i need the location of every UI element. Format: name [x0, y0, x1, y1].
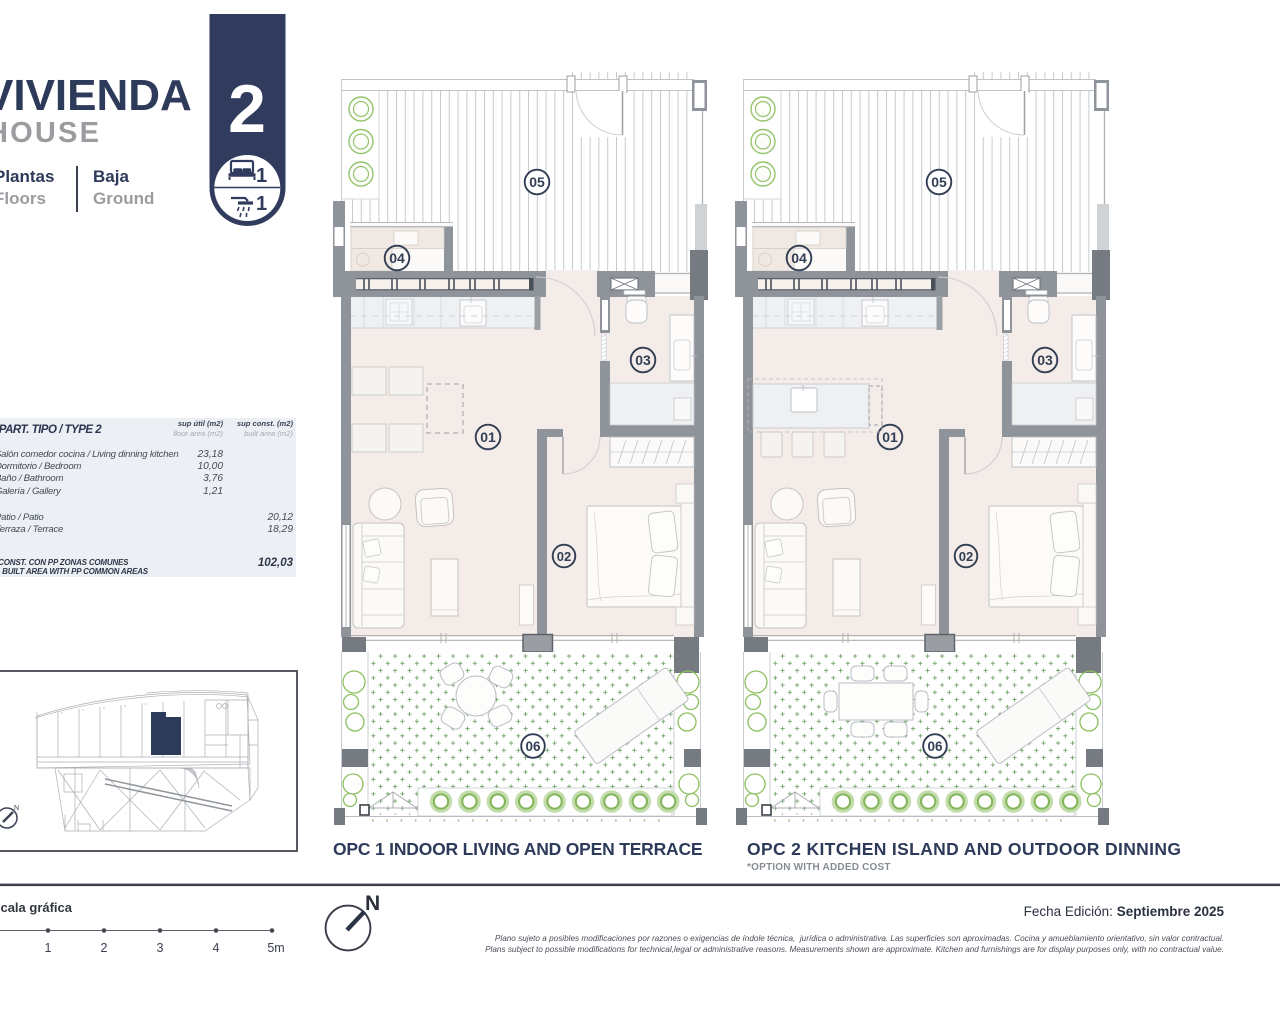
svg-text:2: 2 — [101, 941, 108, 955]
svg-text:5m: 5m — [267, 941, 284, 955]
svg-text:06: 06 — [525, 739, 541, 754]
svg-text:4: 4 — [213, 941, 220, 955]
svg-text:02: 02 — [557, 549, 571, 564]
svg-text:3: 3 — [157, 941, 164, 955]
svg-text:01: 01 — [480, 429, 496, 445]
svg-text:N: N — [365, 892, 380, 915]
svg-text:2: 2 — [228, 71, 266, 147]
svg-text:1: 1 — [256, 193, 267, 215]
svg-text:1: 1 — [45, 941, 52, 955]
svg-text:05: 05 — [529, 174, 545, 190]
svg-text:1: 1 — [256, 165, 267, 187]
svg-text:04: 04 — [389, 250, 405, 266]
svg-text:N: N — [14, 805, 19, 812]
svg-text:03: 03 — [635, 352, 651, 368]
